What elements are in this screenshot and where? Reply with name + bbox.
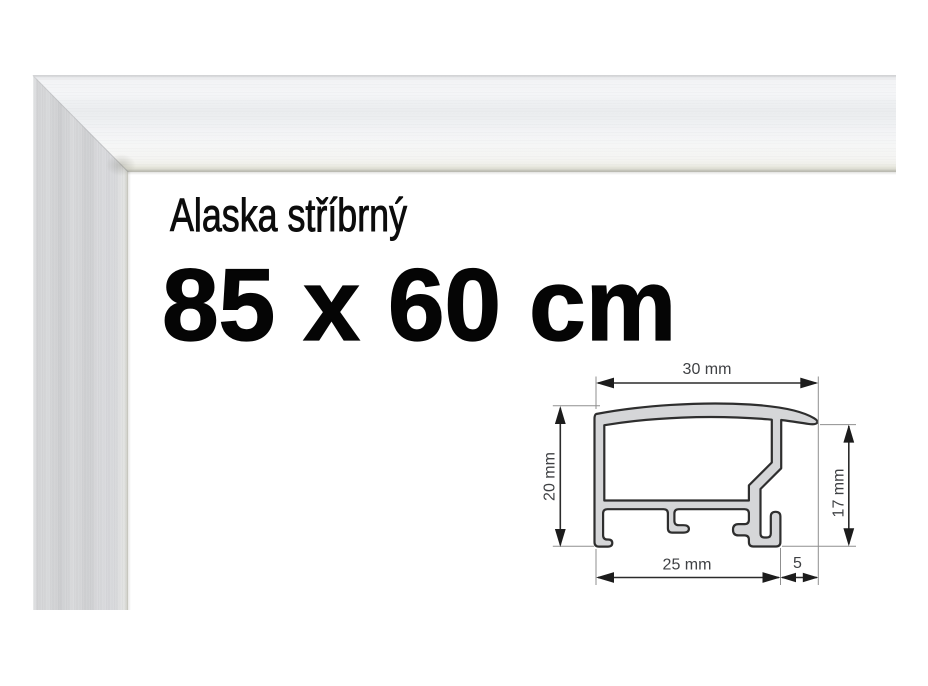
- svg-text:30 mm: 30 mm: [683, 361, 732, 378]
- svg-text:25 mm: 25 mm: [663, 557, 712, 574]
- svg-text:20 mm: 20 mm: [542, 452, 559, 501]
- svg-text:17 mm: 17 mm: [831, 469, 848, 518]
- svg-text:5: 5: [793, 555, 802, 572]
